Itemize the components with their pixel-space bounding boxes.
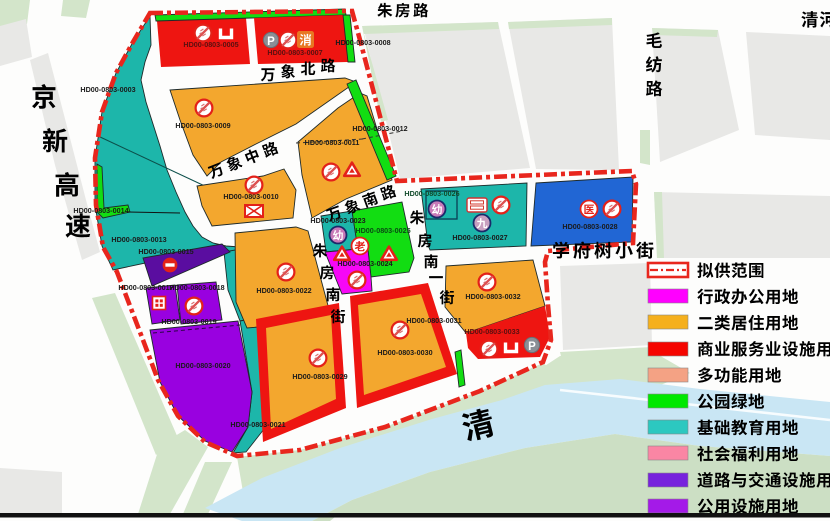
svg-text:HD00-0803-0033: HD00-0803-0033 [464,327,519,336]
svg-text:HD00-0803-0007: HD00-0803-0007 [267,48,322,57]
svg-text:HD00-0803-0021: HD00-0803-0021 [230,420,285,429]
svg-text:HD00-0803-0005: HD00-0803-0005 [183,40,238,49]
svg-text:HD00-0803-0031: HD00-0803-0031 [406,316,461,325]
svg-text:HD00-0803-0032: HD00-0803-0032 [465,292,520,301]
svg-text:HD00-0803-0003: HD00-0803-0003 [80,85,135,94]
svg-text:HD00-0803-0028: HD00-0803-0028 [562,222,617,231]
svg-text:HD00-0803-0012: HD00-0803-0012 [352,124,407,133]
svg-text:HD00-0803-0015: HD00-0803-0015 [138,247,193,256]
svg-text:HD00-0803-0008: HD00-0803-0008 [335,38,390,47]
svg-text:HD00-0803-0023: HD00-0803-0023 [310,216,365,225]
svg-text:HD00-0803-0022: HD00-0803-0022 [256,286,311,295]
svg-text:HD00-0803-0025: HD00-0803-0025 [355,226,410,235]
svg-text:HD00-0803-0018: HD00-0803-0018 [169,283,224,292]
svg-text:HD00-0803-0017: HD00-0803-0017 [118,283,173,292]
svg-text:HD00-0803-0009: HD00-0803-0009 [175,121,230,130]
svg-text:HD00-0803-0030: HD00-0803-0030 [377,348,432,357]
svg-text:HD00-0803-0019: HD00-0803-0019 [161,317,216,326]
svg-text:HD00-0803-0026: HD00-0803-0026 [404,189,459,198]
svg-text:HD00-0803-0011: HD00-0803-0011 [305,138,360,147]
svg-text:HD00-0803-0020: HD00-0803-0020 [175,361,230,370]
svg-text:HD00-0803-0029: HD00-0803-0029 [292,372,347,381]
svg-text:HD00-0803-0027: HD00-0803-0027 [452,233,507,242]
svg-text:HD00-0803-0013: HD00-0803-0013 [111,235,166,244]
svg-text:HD00-0803-0014: HD00-0803-0014 [73,206,128,215]
